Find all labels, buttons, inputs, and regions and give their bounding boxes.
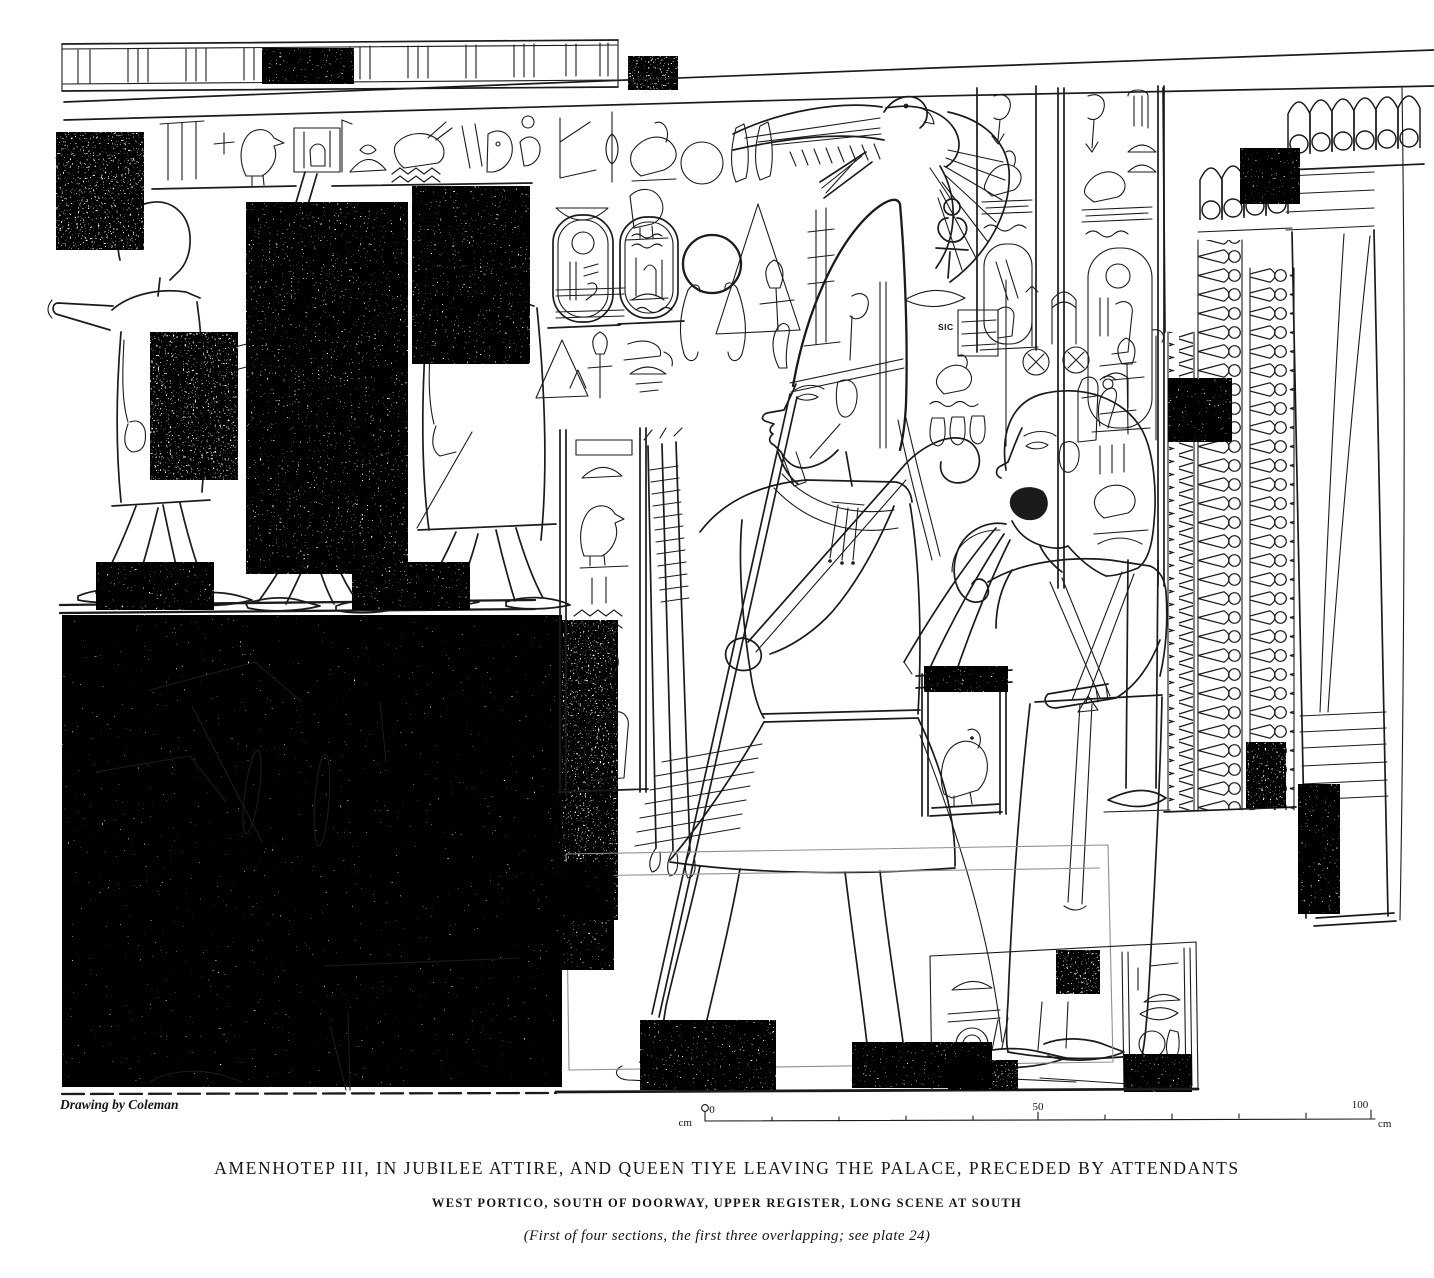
scale-bar: cm 0 50 100 cm: [679, 1099, 1392, 1130]
sic-annotation: SIC: [938, 322, 954, 332]
publication-plate: SIC: [0, 0, 1434, 1278]
royal-titulary: [536, 112, 868, 398]
vulture-wing-coverts: [790, 144, 880, 166]
scale-label-0: 0: [709, 1104, 715, 1116]
king-crown: [773, 200, 940, 560]
drawing-right-edge: [1400, 88, 1404, 920]
queen-upper-arm: [996, 570, 1012, 628]
damage-area-lower-left: [62, 615, 618, 1090]
bull-tail: [920, 735, 1002, 1042]
queen-dress-straps: [1050, 572, 1134, 702]
queen-mouth-damage: [1010, 487, 1048, 520]
scale-unit-left: cm: [679, 1117, 693, 1129]
relief-drawing: SIC: [0, 0, 1434, 1278]
king-arm: [770, 506, 894, 654]
cartouche-column-b: [1058, 86, 1164, 588]
scale-unit-right: cm: [1378, 1118, 1392, 1130]
caption-note: (First of four sections, the first three…: [524, 1228, 931, 1244]
garland-band-2: [1250, 268, 1294, 810]
cartouche-column-a: [977, 86, 1038, 352]
palace-column: [1286, 172, 1396, 926]
titulary-lower-glyphs: [536, 332, 672, 398]
scale-label-100: 100: [1352, 1099, 1369, 1111]
king-figure: [616, 200, 1002, 1086]
damage-patches-upper: [56, 132, 530, 610]
top-frieze: [62, 40, 678, 91]
hieroglyph-panel-2: [1023, 286, 1098, 442]
caption-subtitle: WEST PORTICO, SOUTH OF DOORWAY, UPPER RE…: [432, 1196, 1022, 1210]
sun-disk: [681, 235, 746, 361]
king-fist: [726, 638, 762, 671]
scale-label-50: 50: [1033, 1101, 1045, 1113]
hieroglyph-row-left: [152, 116, 540, 189]
queen-skirt: [1007, 697, 1163, 1058]
queen-wig: [1005, 391, 1156, 568]
shrine-falcon: [941, 729, 987, 806]
caption-title: AMENHOTEP III, IN JUBILEE ATTIRE, AND QU…: [214, 1158, 1239, 1178]
king-face: [763, 380, 858, 486]
vulture-wing-feathers: [938, 150, 1005, 270]
crook-icon: [748, 438, 979, 652]
palace-facade: [1104, 88, 1424, 926]
cartouche-2: [618, 217, 684, 324]
lotus-staves: [644, 428, 695, 878]
garland-band-1: [1198, 240, 1242, 810]
falcon-shrine: [916, 666, 1012, 816]
credit-line: Drawing by Coleman: [59, 1097, 179, 1112]
king-staff: [652, 394, 797, 1017]
titulary-right-glyphs: [716, 204, 868, 360]
